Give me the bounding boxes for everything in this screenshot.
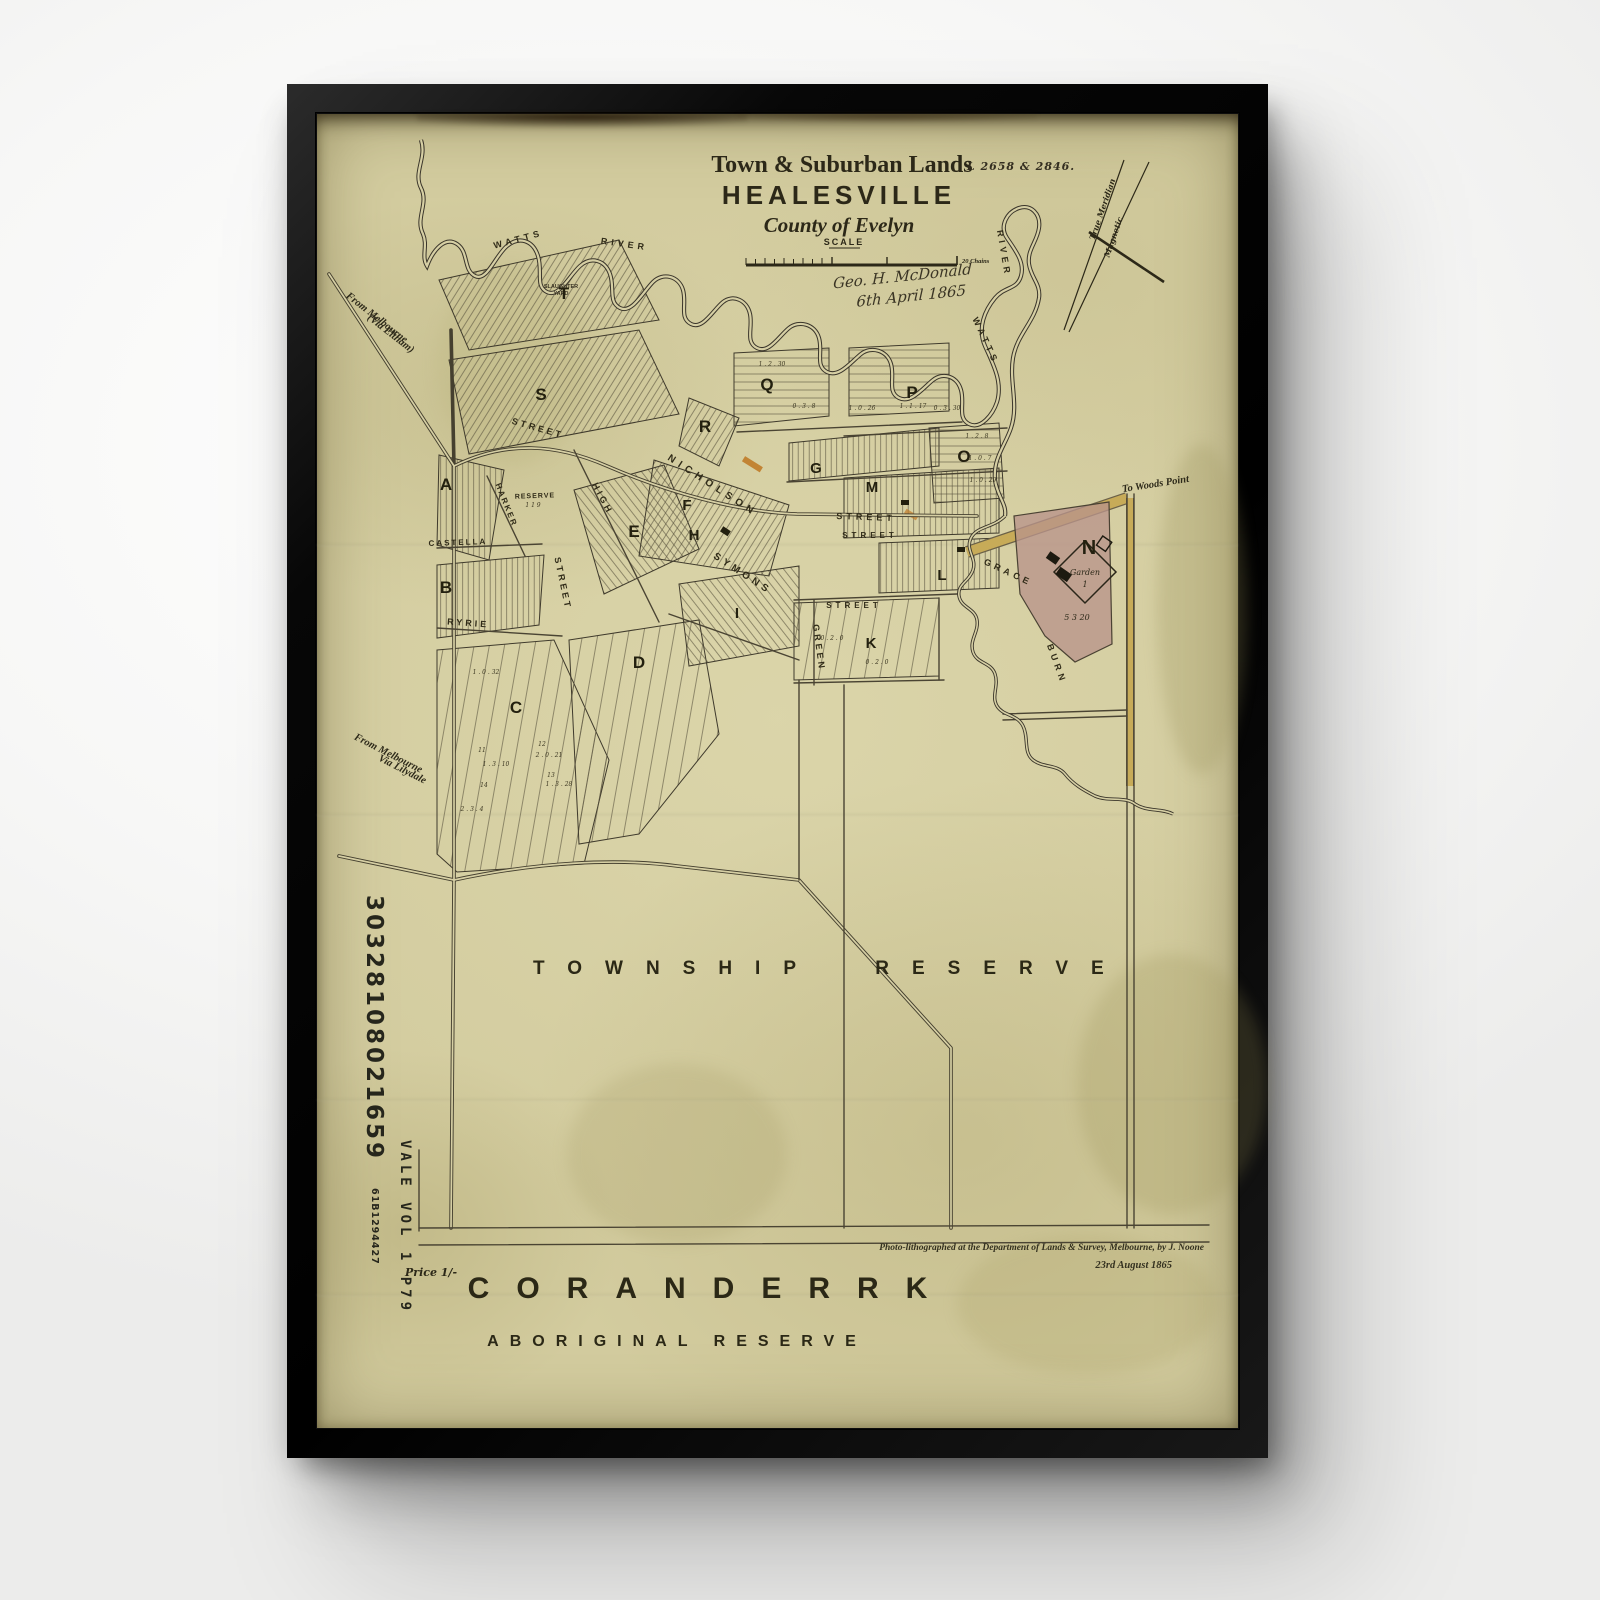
- lot-number: 14: [480, 782, 488, 789]
- healesville-survey-map: True Meridian Magnetic Town & Suburban L…: [317, 114, 1238, 1428]
- block-letter: M: [866, 479, 879, 496]
- block-letter: P: [906, 383, 917, 402]
- lot-number: 1 . 2 . 8: [966, 433, 989, 440]
- scale-bar: [746, 248, 957, 265]
- plan-reference: L 2658 & 2846.: [966, 160, 1075, 173]
- block-letter: G: [810, 460, 822, 477]
- map-title: HEALESVILLE: [722, 180, 956, 210]
- margin-small-number: 61B1294427: [369, 1188, 380, 1265]
- lot-number: 1 . 3 . 10: [483, 761, 510, 768]
- block-letter: F: [682, 497, 691, 514]
- margin-volume-note: VALE VOL 1 P79: [397, 1140, 413, 1314]
- lot-number: 0 . 2 . 0: [821, 635, 844, 642]
- block-S: [449, 330, 679, 454]
- garden-number: 1: [1082, 580, 1087, 589]
- street-label: RESERVE: [515, 492, 556, 500]
- credit-line1: Photo-lithographed at the Department of …: [879, 1243, 1205, 1253]
- lot-number: 2 . 0 . 21: [535, 752, 563, 759]
- lot-number: 2 . 3 . 4: [460, 806, 484, 813]
- street-label: STREET: [552, 556, 573, 610]
- block-letter: L: [937, 567, 946, 584]
- lot-number: 1 . 0 . 26: [849, 405, 876, 412]
- lot-number: 0 . 3 . 30: [934, 405, 961, 412]
- reserve-word: RESERVE: [875, 958, 1126, 979]
- street-label: STREET: [826, 601, 882, 610]
- picture-frame: True Meridian Magnetic Town & Suburban L…: [287, 84, 1268, 1458]
- block-letter: E: [628, 522, 639, 541]
- map-kicker: Town & Suburban Lands: [711, 152, 972, 178]
- garden-area: 5 3 20: [1064, 613, 1089, 622]
- block-letter: R: [699, 417, 711, 436]
- block-letter: C: [510, 698, 522, 717]
- margin-catalogue-number: 30328108021659: [361, 895, 387, 1161]
- lot-number: 1 . 1 . 17: [900, 403, 927, 410]
- credit-line2: 23rd August 1865: [1094, 1260, 1172, 1271]
- water-label: WATTS: [492, 228, 544, 251]
- route-eltham-line2: (Via Eltham): [365, 312, 416, 355]
- map-paper: True Meridian Magnetic Town & Suburban L…: [317, 114, 1238, 1428]
- lot-number: 0 . 3 . 8: [793, 403, 816, 410]
- lot-number: 0 . 2 . 0: [866, 659, 889, 666]
- block-Q: [734, 348, 829, 426]
- block-letter: N: [1082, 537, 1096, 559]
- lot-number: 1 . 0 . 29: [970, 477, 997, 484]
- lot-number: 1 . 0 . 32: [473, 669, 500, 676]
- block-letter: A: [440, 475, 452, 494]
- street-label: STREET: [836, 511, 896, 523]
- coranderrk-subtitle: ABORIGINAL RESERVE: [487, 1333, 867, 1350]
- street-label: STREET: [842, 531, 898, 540]
- block-letter: I: [735, 605, 739, 622]
- route-woods-point: To Woods Point: [1121, 474, 1190, 496]
- scale-label: SCALE: [824, 237, 865, 247]
- lot-number: 1 . 2 . 30: [759, 361, 786, 368]
- block-letter: K: [866, 635, 877, 652]
- block-letter: H: [689, 527, 700, 544]
- lot-number: 1 . 3 . 28: [546, 781, 573, 788]
- coranderrk-title: CORANDERRK: [468, 1272, 955, 1305]
- map-subtitle: County of Evelyn: [764, 213, 915, 237]
- water-label: WATTS: [970, 316, 1001, 366]
- garden-label: Garden: [1070, 568, 1100, 577]
- lot-number: 1 1 9: [525, 502, 540, 509]
- water-label: RIVER: [995, 229, 1013, 278]
- block-letter: Q: [760, 375, 773, 394]
- block-letter: D: [633, 653, 645, 672]
- lot-number: 11: [478, 747, 486, 754]
- block-letter: B: [440, 578, 452, 597]
- block-letter: T: [559, 284, 570, 303]
- lot-number: 1 . 0 . 7: [969, 455, 992, 462]
- township-word: TOWNSHIP: [533, 958, 819, 979]
- lot-number: 13: [547, 772, 555, 779]
- lot-number: 12: [538, 741, 546, 748]
- block-letter: S: [535, 385, 546, 404]
